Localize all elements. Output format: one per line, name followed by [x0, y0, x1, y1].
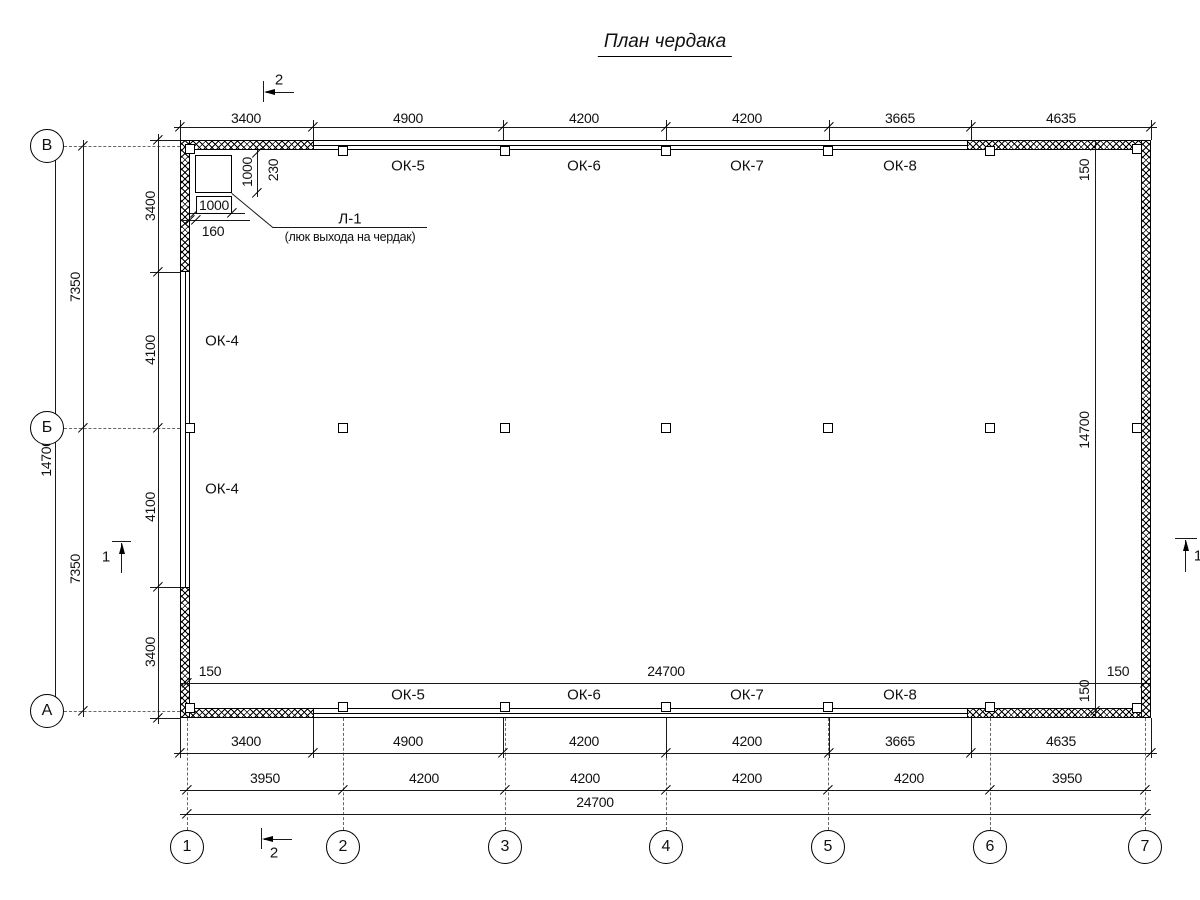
dim-line [1095, 141, 1096, 716]
section-arrow-icon [119, 543, 125, 554]
column-post [985, 423, 995, 433]
dim-text: 4200 [732, 110, 762, 126]
grid-bubble-row: А [30, 694, 64, 728]
hatch-height-dim: 1000 [239, 157, 255, 187]
window-label: ОК-4 [205, 481, 239, 498]
section-label: 1 [102, 549, 110, 566]
dim-text: 24700 [647, 663, 684, 679]
dim-text: 3950 [250, 770, 280, 786]
extension-line [313, 120, 314, 140]
column-post [661, 146, 671, 156]
grid-bubble-col: 2 [326, 830, 360, 864]
dim-text: 14700 [1076, 411, 1092, 448]
extension-line [180, 120, 181, 140]
dim-text: 7350 [67, 272, 83, 302]
column-post [338, 146, 348, 156]
dim-text: 24700 [576, 794, 613, 810]
column-post [985, 702, 995, 712]
dim-text: 4200 [409, 770, 439, 786]
column-post [823, 423, 833, 433]
dim-text: 4200 [569, 110, 599, 126]
dim-text: 3950 [1052, 770, 1082, 786]
grid-bubble-col: 6 [973, 830, 1007, 864]
section-marker-bar [1175, 538, 1197, 539]
window-label: ОК-8 [883, 158, 917, 175]
hatch-label: Л-1 [338, 211, 361, 228]
section-arrow-icon [1183, 540, 1189, 551]
hatch-width-dim: 1000 [196, 196, 232, 214]
grid-bubble-col: 3 [488, 830, 522, 864]
window-label: ОК-7 [730, 158, 764, 175]
dim-line [181, 683, 1150, 684]
dim-line [158, 134, 159, 724]
dim-text: 150 [1076, 680, 1092, 702]
dim-text: 4200 [732, 770, 762, 786]
window-label: ОК-4 [205, 333, 239, 350]
column-post [185, 144, 195, 154]
dim-text: 4200 [732, 733, 762, 749]
column-post [1132, 423, 1142, 433]
wall-hatch-right [1141, 140, 1151, 718]
dim-text: 3400 [231, 110, 261, 126]
window-label: ОК-5 [391, 158, 425, 175]
dim-text: 7350 [67, 554, 83, 584]
grid-bubble-col: 4 [649, 830, 683, 864]
column-post [1132, 144, 1142, 154]
grid-bubble-col: 5 [811, 830, 845, 864]
dim-text: 4200 [569, 733, 599, 749]
dim-text: 150 [1107, 663, 1129, 679]
column-post [500, 702, 510, 712]
dim-text: 4635 [1046, 110, 1076, 126]
extension-line [503, 120, 504, 140]
extension-line [666, 120, 667, 140]
hatch-offset-y-dim: 230 [265, 159, 281, 181]
section-label: 2 [270, 845, 278, 862]
column-post [823, 146, 833, 156]
dim-text: 4900 [393, 733, 423, 749]
wall-hatch-top-left [180, 140, 314, 150]
wall-hatch-bottom-left [180, 708, 314, 718]
column-post [338, 423, 348, 433]
dim-text: 3665 [885, 733, 915, 749]
roof-hatch-opening [195, 155, 232, 193]
window-label: ОК-6 [567, 158, 601, 175]
dim-text: 4200 [570, 770, 600, 786]
drawing-title: План чердака [598, 31, 732, 57]
dim-text: 3400 [142, 191, 158, 221]
hatch-offset-x-dim: 160 [202, 223, 224, 239]
extension-line [971, 120, 972, 140]
window-strip-top [314, 140, 967, 150]
dim-text: 4635 [1046, 733, 1076, 749]
column-post [661, 423, 671, 433]
window-strip-bottom [314, 708, 967, 718]
hatch-description: (люк выхода на чердак) [285, 230, 416, 244]
dim-text: 4100 [142, 492, 158, 522]
column-post [823, 702, 833, 712]
dim-text: 3665 [885, 110, 915, 126]
dim-text: 150 [199, 663, 221, 679]
window-label: ОК-8 [883, 687, 917, 704]
wall-hatch-left-top [180, 140, 190, 272]
section-label: 1 [1194, 548, 1200, 565]
section-marker-bar [112, 541, 131, 542]
dim-text: 4200 [894, 770, 924, 786]
column-post [500, 423, 510, 433]
section-arrow-icon [264, 89, 275, 95]
wall-hatch-left-bottom [180, 587, 190, 718]
column-post [185, 423, 195, 433]
attic-plan-drawing: План чердака 1000 230 1000 160 Л-1 (люк … [0, 0, 1200, 900]
column-post [500, 146, 510, 156]
grid-bubble-col: 1 [170, 830, 204, 864]
dim-text: 3400 [142, 637, 158, 667]
window-label: ОК-5 [391, 687, 425, 704]
column-post [661, 702, 671, 712]
dim-text: 3400 [231, 733, 261, 749]
column-post [1132, 703, 1142, 713]
section-arrow-icon [262, 836, 273, 842]
column-post [338, 702, 348, 712]
grid-bubble-col: 7 [1128, 830, 1162, 864]
dim-line [180, 814, 1151, 815]
dim-text: 4900 [393, 110, 423, 126]
grid-bubble-row: Б [30, 411, 64, 445]
dim-text: 150 [1076, 159, 1092, 181]
window-label: ОК-7 [730, 687, 764, 704]
grid-bubble-row: В [30, 129, 64, 163]
section-label: 2 [275, 72, 283, 89]
column-post [985, 146, 995, 156]
column-post [185, 703, 195, 713]
window-label: ОК-6 [567, 687, 601, 704]
extension-line [1151, 120, 1152, 140]
dim-text: 4100 [142, 335, 158, 365]
extension-line [829, 120, 830, 140]
